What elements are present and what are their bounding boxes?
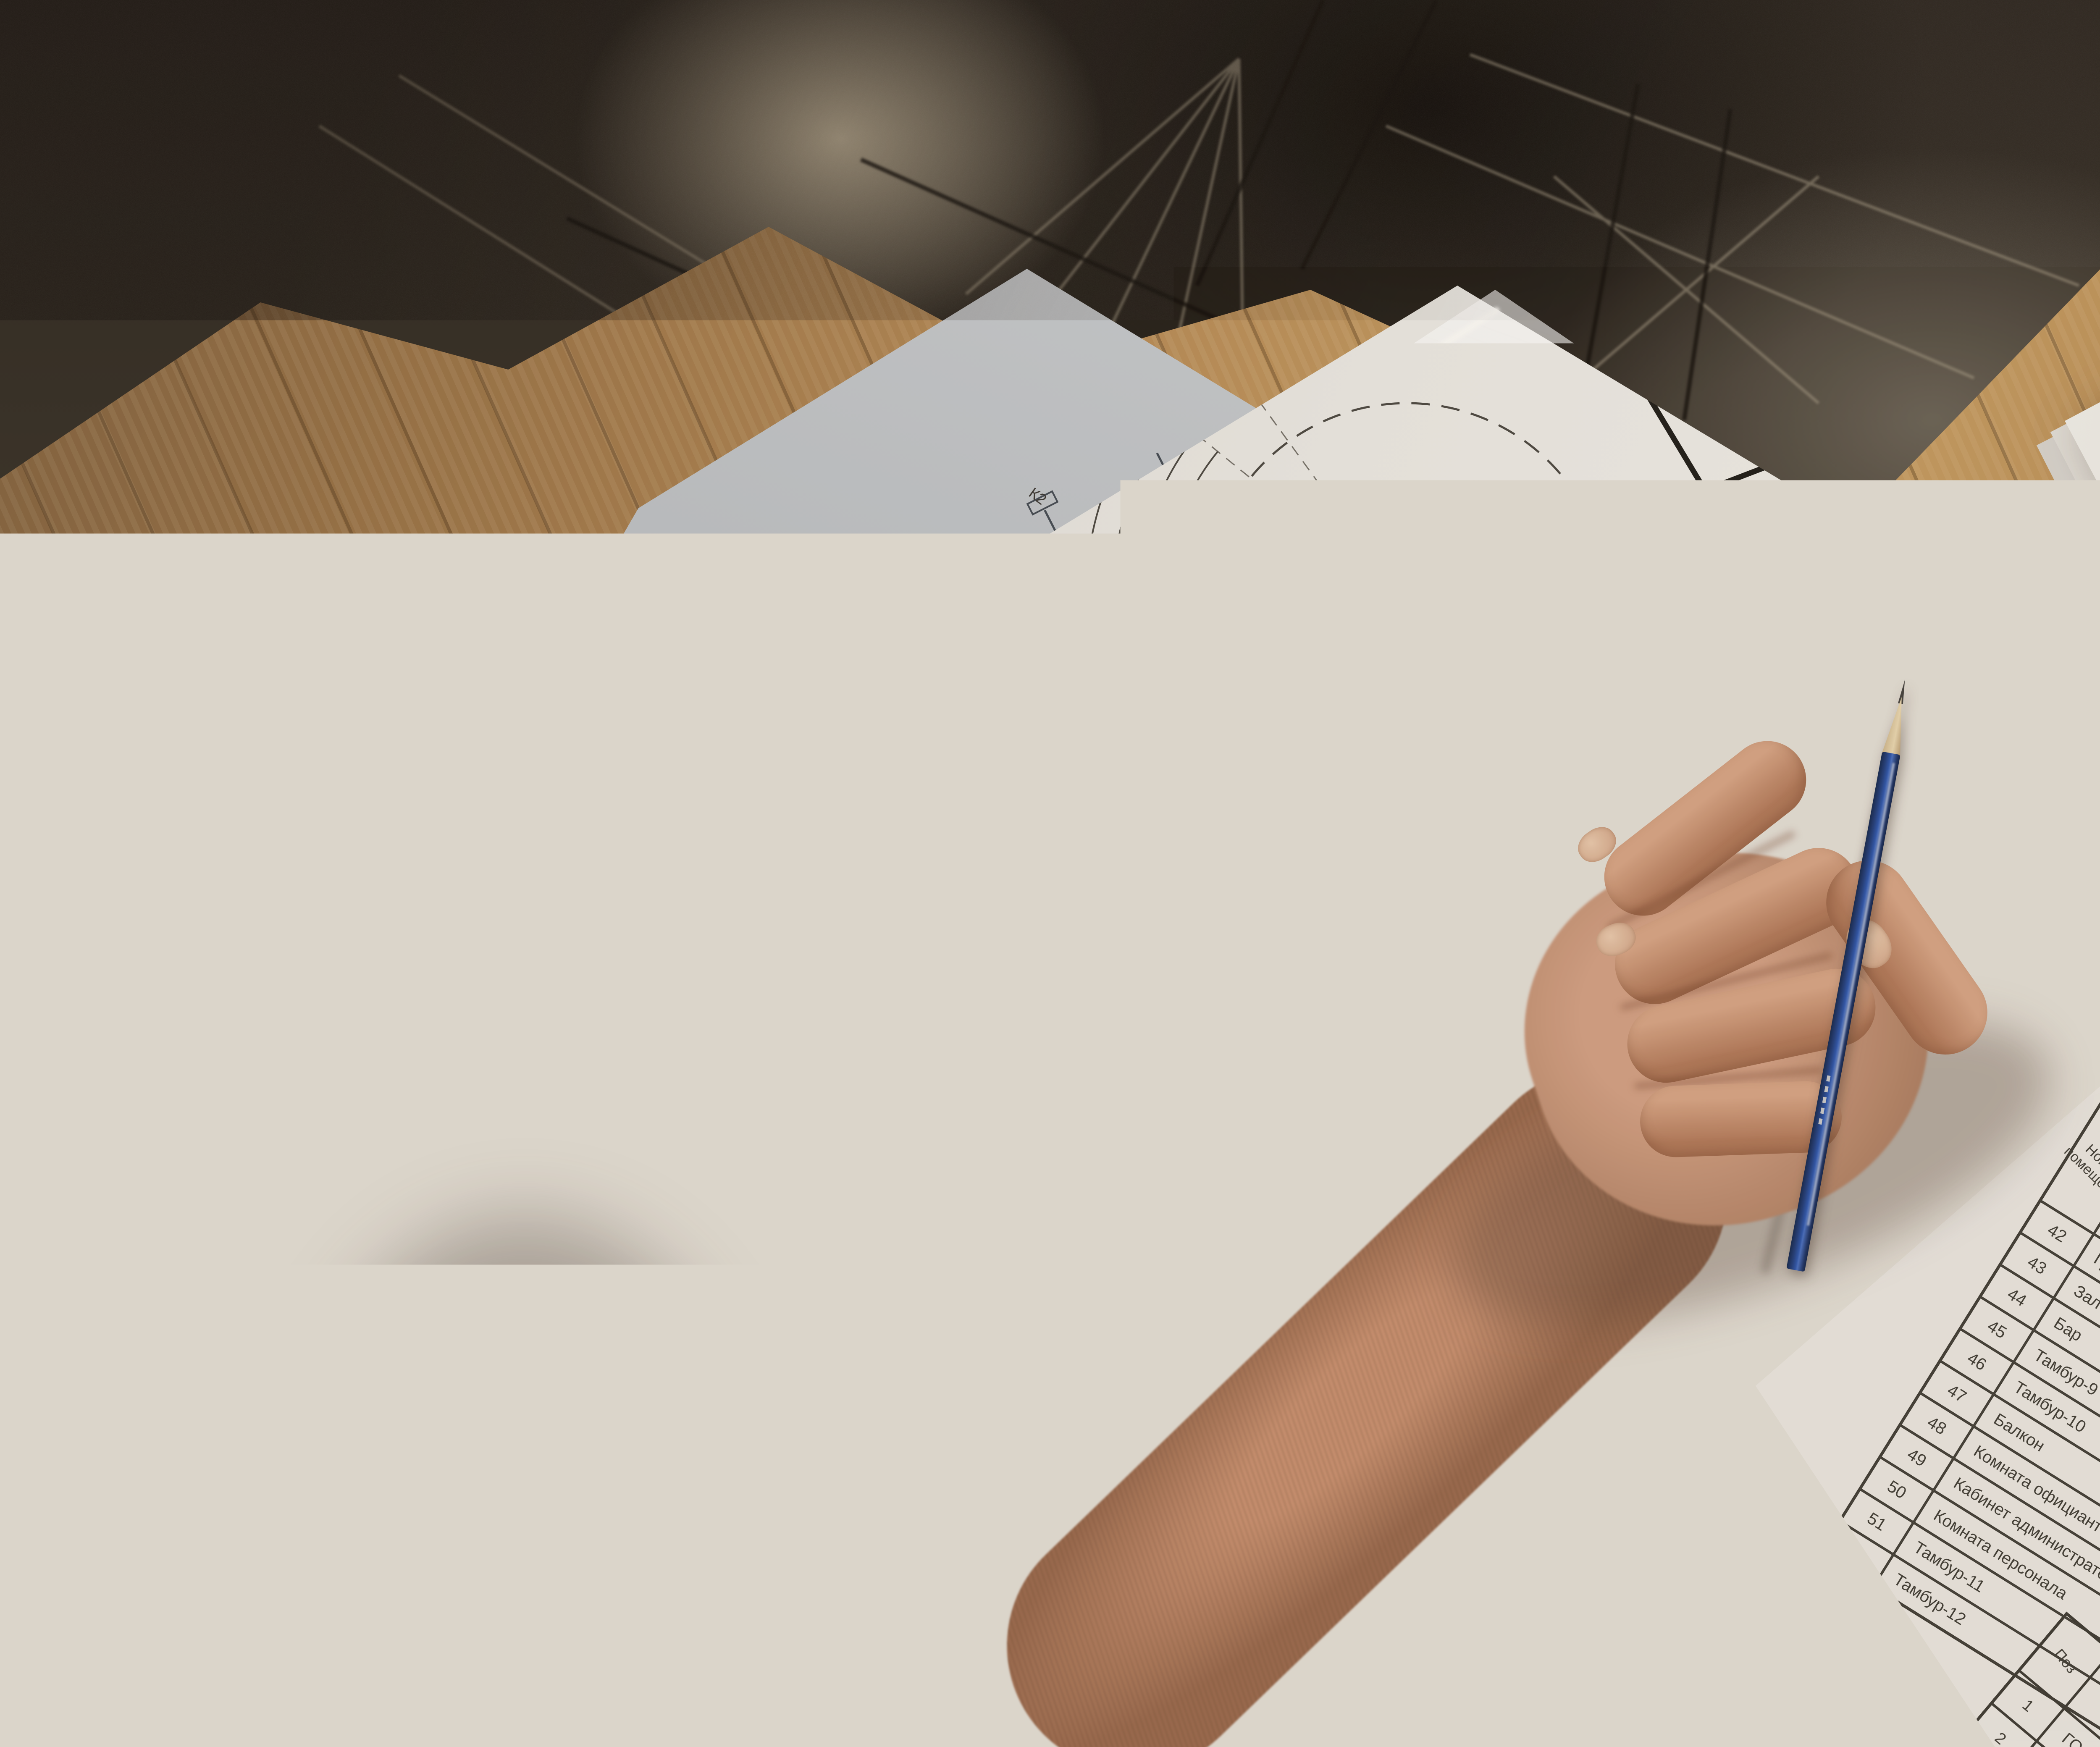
room-number: 49 [1904, 1445, 1930, 1471]
riser-label: К2 [1026, 484, 1050, 508]
room-number: 44 [2004, 1285, 2030, 1311]
faint-section-label: Б-Б [1714, 1455, 1745, 1483]
faint-grid-bubble: 6 [1762, 1439, 1770, 1455]
photo-canvas: К1 К2 К1 К2 К1 К2 К1 К2 2 3700 5850 7260… [0, 0, 2100, 1747]
schedule-size: 1200х1500 [1055, 1174, 1114, 1250]
explication-col-num: Номер помещения [2061, 1132, 2100, 1205]
faint-grid-bubble: 10 [1798, 1319, 1814, 1335]
room-number: 45 [1984, 1317, 2010, 1343]
spec-pos: 1 [2019, 1696, 2037, 1716]
room-name: Зал [2071, 1281, 2100, 1313]
room-number: 51 [1864, 1509, 1890, 1535]
pencil-lead-tip [1898, 679, 1907, 704]
schedule-mark: Б-1 [1139, 1143, 1168, 1165]
room-number: 50 [1884, 1477, 1910, 1503]
schedule-mark: 6 [1199, 1205, 1210, 1226]
spec-pos: 2 [1991, 1729, 2010, 1747]
room-number: 43 [2024, 1252, 2050, 1278]
room-number: 46 [1964, 1348, 1990, 1375]
room-name: Бар [2050, 1314, 2086, 1346]
room-number: 47 [1944, 1381, 1970, 1407]
room-number: 42 [2044, 1220, 2070, 1246]
spec-col-pos: Поз [2050, 1645, 2081, 1676]
plan-dim: 774 [1990, 620, 2014, 645]
room-number: 48 [1924, 1413, 1950, 1439]
schedule-size: 900х2110 [1006, 1117, 1060, 1185]
section-marker-ref: 132-АС-10 [1318, 970, 1404, 1003]
section-marker-arrow-icon [1366, 908, 1418, 957]
